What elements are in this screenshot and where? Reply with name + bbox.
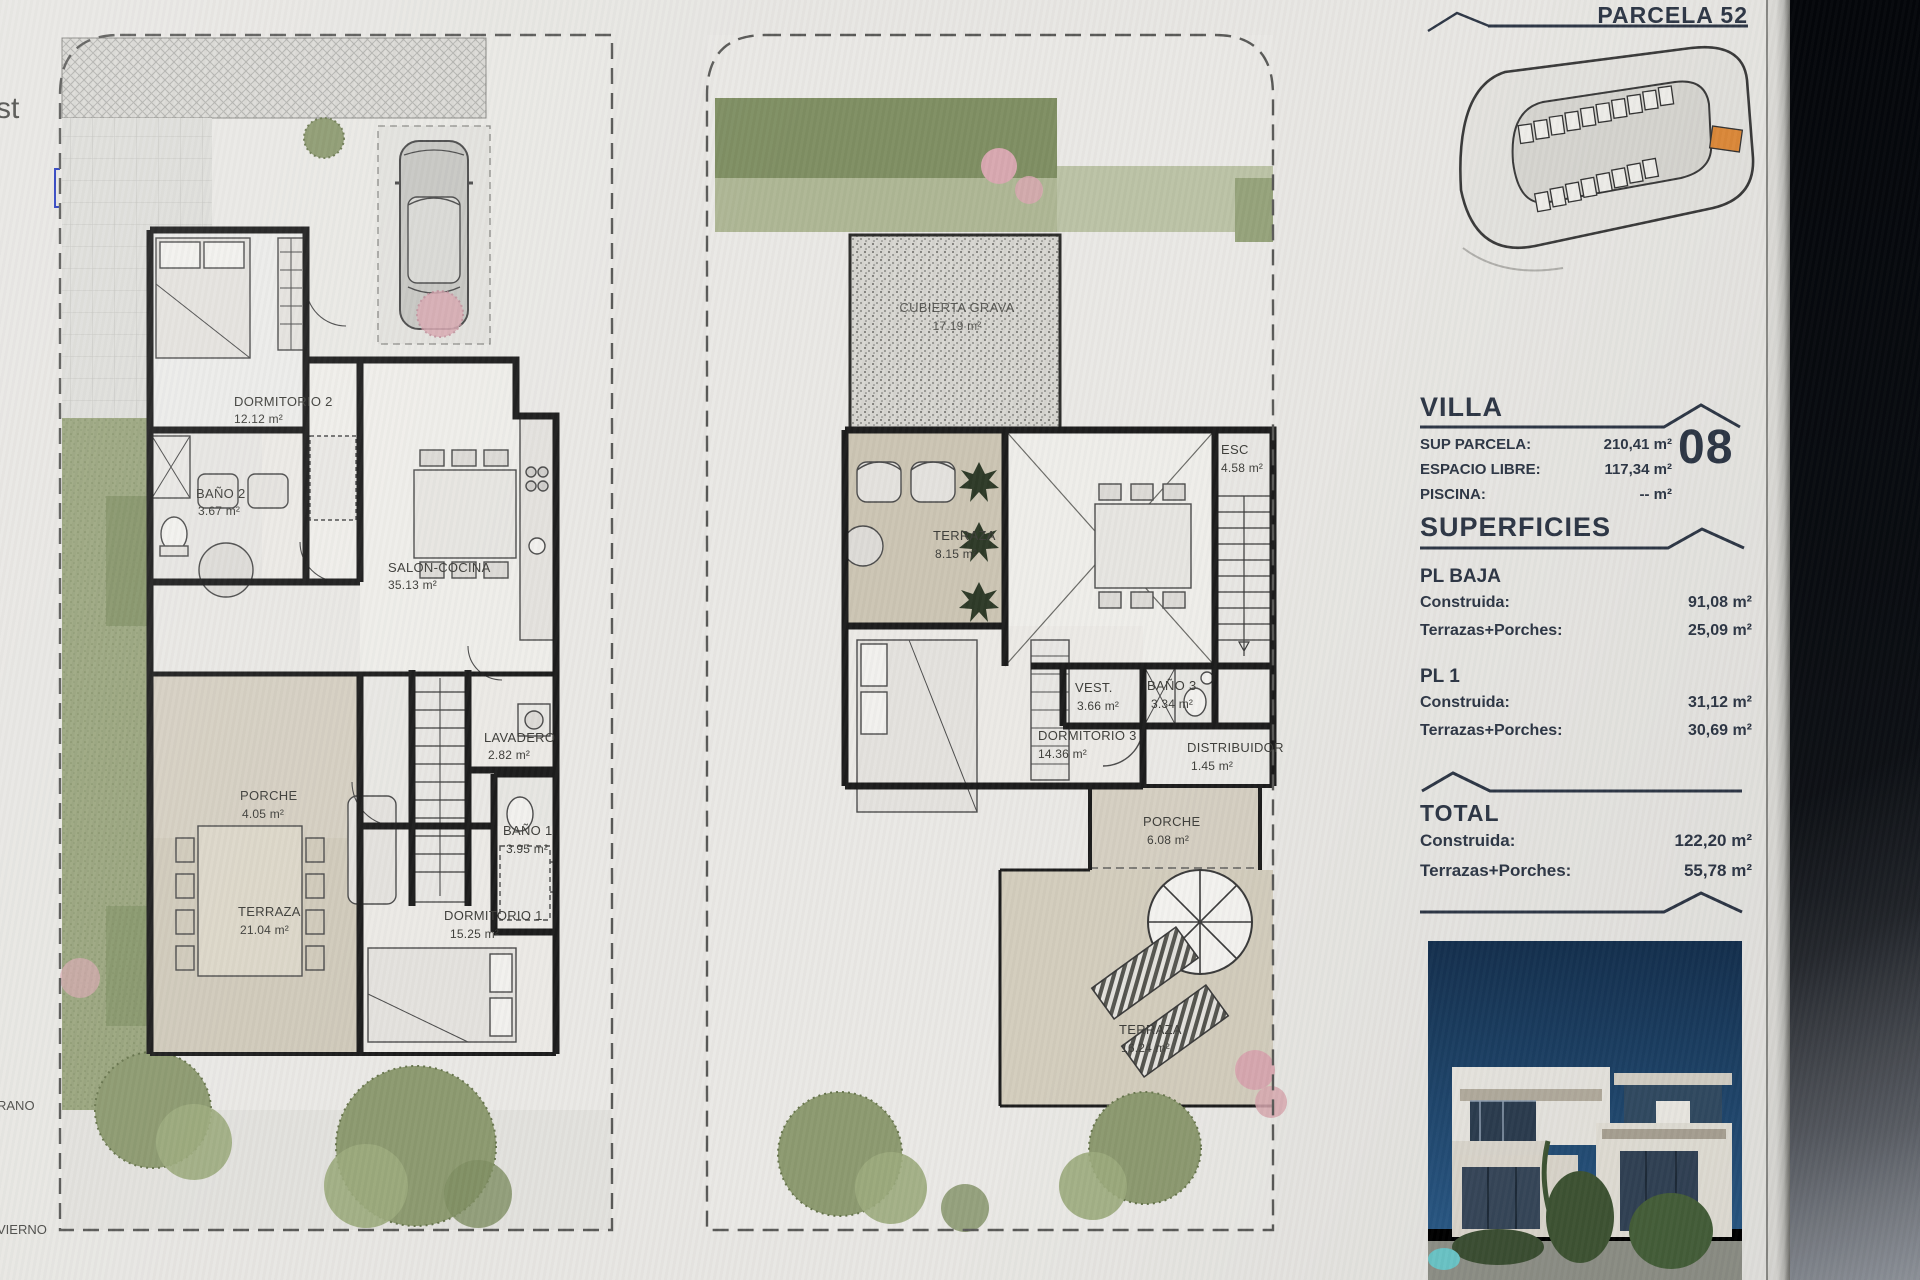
row-label: Construida: bbox=[1420, 694, 1510, 712]
pl-1-title: PL 1 bbox=[1420, 666, 1460, 688]
pl-baja-row: Terrazas+Porches: 25,09 m² bbox=[1420, 622, 1752, 644]
villa-photo bbox=[1428, 941, 1742, 1280]
row-value: 210,41 m² bbox=[1604, 436, 1672, 453]
screen-bezel bbox=[1790, 0, 1920, 1280]
gravel-roof: CUBIERTA GRAVA 17.19 m² bbox=[850, 235, 1060, 431]
total-row: Terrazas+Porches: 55,78 m² bbox=[1420, 861, 1752, 883]
row-label: Terrazas+Porches: bbox=[1420, 622, 1562, 640]
svg-text:1.45 m²: 1.45 m² bbox=[1191, 759, 1233, 773]
svg-text:2.82 m²: 2.82 m² bbox=[488, 748, 530, 762]
svg-text:PORCHE: PORCHE bbox=[240, 788, 297, 803]
row-value: 55,78 m² bbox=[1684, 861, 1752, 881]
villa-row: PISCINA: -- m² bbox=[1420, 486, 1672, 508]
row-label: ESPACIO LIBRE: bbox=[1420, 461, 1541, 478]
svg-text:DISTRIBUIDOR: DISTRIBUIDOR bbox=[1187, 740, 1284, 755]
svg-text:BAÑO 2: BAÑO 2 bbox=[196, 486, 245, 501]
row-value: 122,20 m² bbox=[1675, 831, 1753, 851]
ground-floor-plan: DORMITORIO 2 12.12 m² BAÑO 2 3.67 m² SAL… bbox=[48, 26, 626, 1238]
villa-number: 08 bbox=[1678, 420, 1733, 475]
parcel-title: PARCELA 52 bbox=[1418, 2, 1748, 29]
row-value: 91,08 m² bbox=[1688, 594, 1752, 612]
superficies-heading: SUPERFICIES bbox=[1420, 512, 1611, 543]
svg-text:BAÑO 1: BAÑO 1 bbox=[503, 823, 552, 838]
edge-fragment-verano: RANO bbox=[0, 1098, 35, 1113]
row-value: -- m² bbox=[1640, 486, 1673, 503]
svg-text:21.04 m²: 21.04 m² bbox=[240, 923, 289, 937]
row-value: 117,34 m² bbox=[1604, 461, 1672, 478]
svg-text:LAVADERO: LAVADERO bbox=[484, 730, 555, 745]
row-value: 25,09 m² bbox=[1688, 622, 1752, 640]
siteplan-minimap bbox=[1443, 40, 1765, 288]
row-label: SUP PARCELA: bbox=[1420, 436, 1531, 453]
svg-text:14.36 m²: 14.36 m² bbox=[1038, 747, 1087, 761]
panel-edge bbox=[1766, 0, 1790, 1280]
stairs bbox=[414, 674, 466, 902]
svg-text:3.95 m²: 3.95 m² bbox=[506, 842, 548, 856]
svg-text:VEST.: VEST. bbox=[1075, 680, 1113, 695]
svg-text:3.66 m²: 3.66 m² bbox=[1077, 699, 1119, 713]
pl-1-row: Terrazas+Porches: 30,69 m² bbox=[1420, 722, 1752, 744]
svg-text:8.15 m²: 8.15 m² bbox=[935, 547, 977, 561]
svg-text:17.19 m²: 17.19 m² bbox=[933, 319, 982, 333]
row-label: Terrazas+Porches: bbox=[1420, 861, 1571, 881]
street-pavement-hatch bbox=[62, 38, 486, 118]
svg-text:CUBIERTA GRAVA: CUBIERTA GRAVA bbox=[899, 300, 1014, 315]
svg-text:35.13 m²: 35.13 m² bbox=[388, 578, 437, 592]
svg-text:4.05 m²: 4.05 m² bbox=[242, 807, 284, 821]
svg-text:SALON-COCINA: SALON-COCINA bbox=[388, 560, 491, 575]
edge-fragment-top: st bbox=[0, 92, 19, 126]
total-row: Construida: 122,20 m² bbox=[1420, 831, 1752, 853]
pl-baja-row: Construida: 91,08 m² bbox=[1420, 594, 1752, 616]
svg-text:15.25 m²: 15.25 m² bbox=[450, 927, 499, 941]
svg-text:3.34 m²: 3.34 m² bbox=[1151, 697, 1193, 711]
svg-text:DORMITORIO 1: DORMITORIO 1 bbox=[444, 908, 543, 923]
row-label: PISCINA: bbox=[1420, 486, 1486, 503]
svg-text:TERRAZA: TERRAZA bbox=[933, 528, 996, 543]
svg-text:TERRAZA: TERRAZA bbox=[1119, 1022, 1182, 1037]
svg-text:TERRAZA: TERRAZA bbox=[238, 904, 301, 919]
svg-text:ESC: ESC bbox=[1221, 442, 1249, 457]
edge-fragment-invierno: VIERNO bbox=[0, 1222, 47, 1237]
svg-text:16.24 m²: 16.24 m² bbox=[1121, 1041, 1170, 1055]
svg-text:3.67 m²: 3.67 m² bbox=[198, 504, 240, 518]
villa-row: ESPACIO LIBRE: 117,34 m² bbox=[1420, 461, 1672, 483]
villa-row: SUP PARCELA: 210,41 m² bbox=[1420, 436, 1672, 458]
plan-sheet: st RANO VIERNO bbox=[0, 0, 1920, 1280]
highlighted-parcel-52 bbox=[1710, 126, 1743, 152]
svg-text:6.08 m²: 6.08 m² bbox=[1147, 833, 1189, 847]
pl-baja-title: PL BAJA bbox=[1420, 566, 1501, 588]
svg-text:12.12 m²: 12.12 m² bbox=[234, 412, 283, 426]
row-value: 30,69 m² bbox=[1688, 722, 1752, 740]
villa-heading: VILLA bbox=[1420, 392, 1503, 423]
pl-1-row: Construida: 31,12 m² bbox=[1420, 694, 1752, 716]
svg-text:PORCHE: PORCHE bbox=[1143, 814, 1200, 829]
row-value: 31,12 m² bbox=[1688, 694, 1752, 712]
total-heading: TOTAL bbox=[1420, 800, 1500, 827]
svg-text:DORMITORIO 2: DORMITORIO 2 bbox=[234, 394, 333, 409]
svg-text:BAÑO 3: BAÑO 3 bbox=[1147, 678, 1196, 693]
first-floor-plan: CUBIERTA GRAVA 17.19 m² bbox=[695, 26, 1295, 1238]
svg-text:4.58 m²: 4.58 m² bbox=[1221, 461, 1263, 475]
row-label: Construida: bbox=[1420, 594, 1510, 612]
row-label: Terrazas+Porches: bbox=[1420, 722, 1562, 740]
svg-text:DORMITORIO 3: DORMITORIO 3 bbox=[1038, 728, 1137, 743]
row-label: Construida: bbox=[1420, 831, 1515, 851]
